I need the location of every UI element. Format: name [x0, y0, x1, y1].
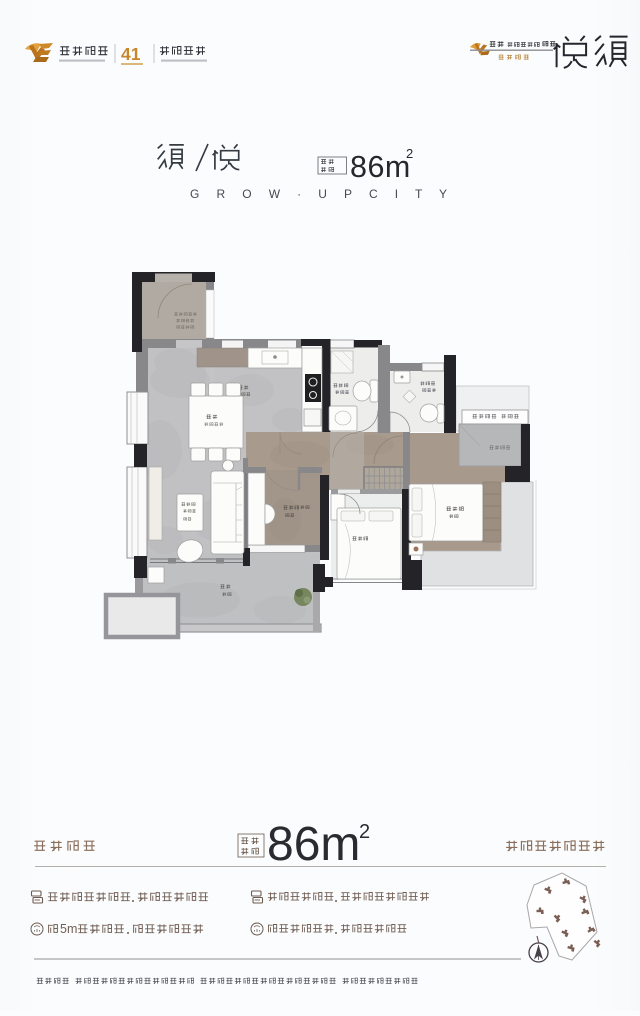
- svg-text:5m: 5m: [60, 922, 77, 936]
- svg-text:41: 41: [121, 44, 141, 64]
- svg-text:86m: 86m: [267, 818, 360, 871]
- svg-text:2: 2: [359, 821, 370, 843]
- svg-text:86m: 86m: [350, 150, 411, 184]
- svg-text:2: 2: [406, 146, 413, 161]
